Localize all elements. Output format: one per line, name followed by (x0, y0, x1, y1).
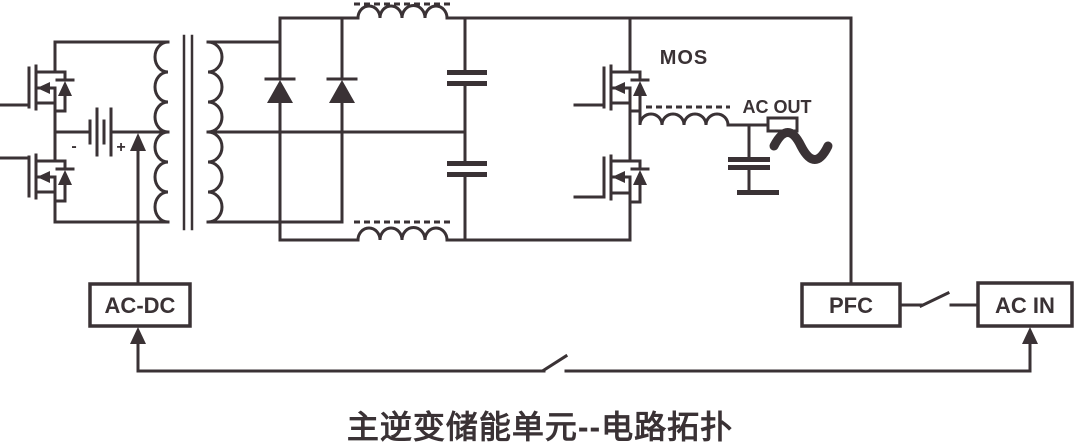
output-capacitor-icon (728, 160, 770, 168)
primary-mosfet-bottom-icon (0, 132, 73, 222)
arrow-up-to-battery-icon (130, 133, 146, 151)
pfc-label: PFC (829, 293, 873, 318)
ac-out-label: AC OUT (743, 97, 812, 117)
dc-link-filter (280, 4, 851, 284)
mos-label: MOS (660, 47, 709, 69)
arrow-up-to-ac-dc-icon (130, 327, 146, 344)
circuit-topology-diagram: - + MOS (0, 0, 1080, 447)
pfc-block: PFC (802, 284, 900, 326)
dc-link-capacitors-icon (447, 73, 487, 175)
load-resistor-icon (768, 118, 797, 131)
battery-minus-label: - (71, 138, 76, 155)
ac-dc-label: AC-DC (105, 293, 176, 318)
inverter-mosfet-top-icon (575, 18, 648, 161)
return-switch-icon (544, 356, 566, 370)
battery-icon: - + (55, 109, 168, 156)
ac-in-label: AC IN (995, 293, 1055, 318)
ac-dc-block: AC-DC (90, 284, 190, 326)
inverter-mosfet-bottom-icon (575, 156, 648, 240)
transformer-core (184, 36, 192, 229)
rectifier-diodes-icon (266, 18, 356, 240)
ac-output-filter: AC OUT (640, 97, 828, 193)
pfc-ac-switch-icon (900, 293, 978, 306)
inductor-core-dashes (354, 4, 451, 222)
top-rail-inductor-icon (280, 5, 851, 284)
ac-waveform-icon (774, 133, 828, 160)
battery-plus-label: + (116, 139, 125, 156)
diagram-title: 主逆变储能单元--电路拓扑 (347, 409, 733, 445)
primary-mosfet-top-icon (0, 42, 73, 132)
arrow-up-to-ac-in-icon (1022, 327, 1038, 344)
return-wiring (130, 133, 1038, 371)
ac-in-block: AC IN (978, 283, 1072, 326)
circuit-diagram-canvas: - + MOS (0, 0, 1080, 447)
bottom-rail-inductor-icon (280, 227, 630, 240)
